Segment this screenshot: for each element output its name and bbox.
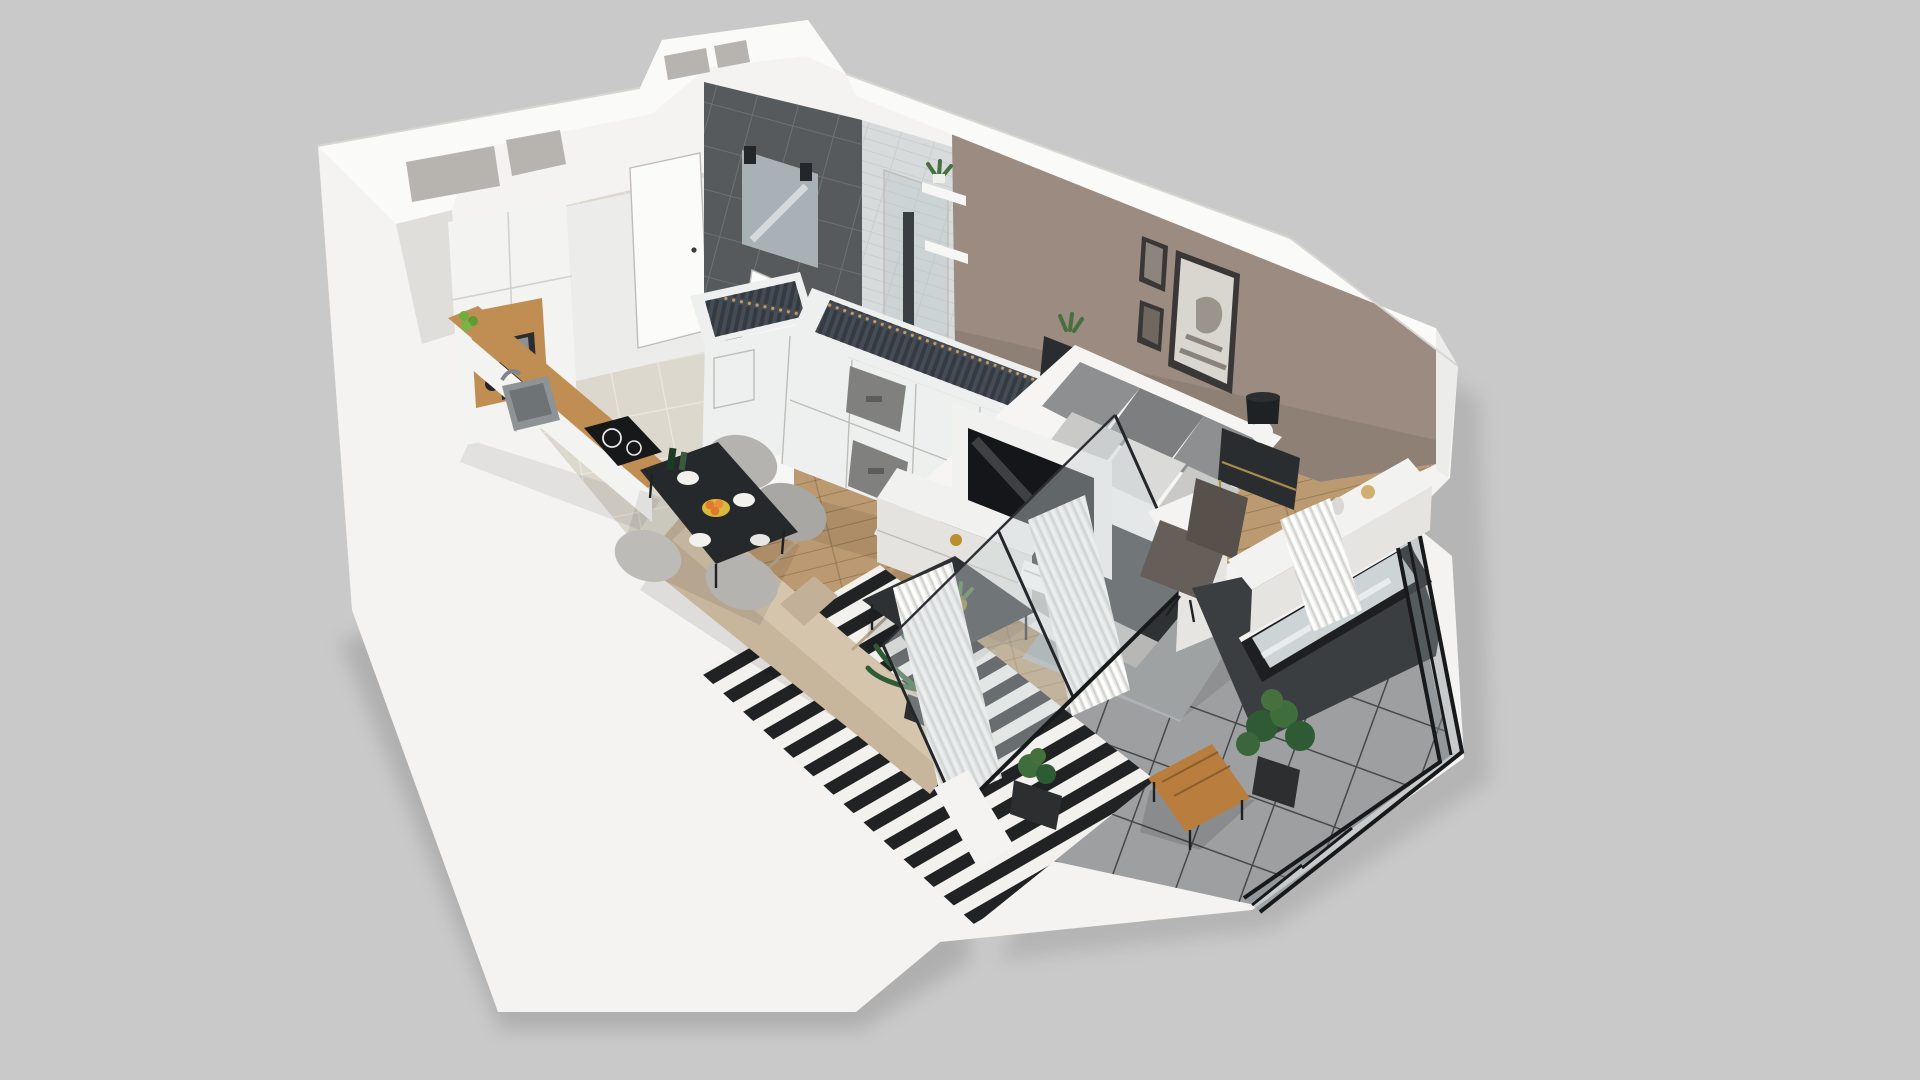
desk-gold-jar xyxy=(1361,485,1375,499)
shelf-plant-pot xyxy=(933,174,945,183)
mirror-sconce-right xyxy=(800,163,812,181)
apple-3 xyxy=(461,321,471,331)
monstera-leaf-5 xyxy=(1236,732,1260,756)
floorplan-render xyxy=(0,0,1920,1080)
plate-2 xyxy=(733,493,755,507)
monstera-leaf-4 xyxy=(1261,689,1283,711)
plate-1 xyxy=(677,471,699,485)
gold-cup xyxy=(950,534,962,546)
entrance-door-handle xyxy=(691,247,696,252)
box-handle-2 xyxy=(868,468,884,474)
shrub-leaf-2 xyxy=(1036,764,1056,784)
mirror-sconce-left xyxy=(744,146,756,164)
render-stage xyxy=(0,0,1920,1080)
plate-3 xyxy=(689,533,711,547)
box-handle-1 xyxy=(866,396,882,402)
shrub-leaf-3 xyxy=(1030,748,1046,764)
fruit-bowl xyxy=(702,499,730,517)
lamp-shade-top xyxy=(1246,392,1280,402)
shower-column xyxy=(903,212,914,330)
monstera-leaf-3 xyxy=(1285,721,1315,751)
plate-4 xyxy=(750,534,770,546)
entrance-door xyxy=(630,153,708,348)
